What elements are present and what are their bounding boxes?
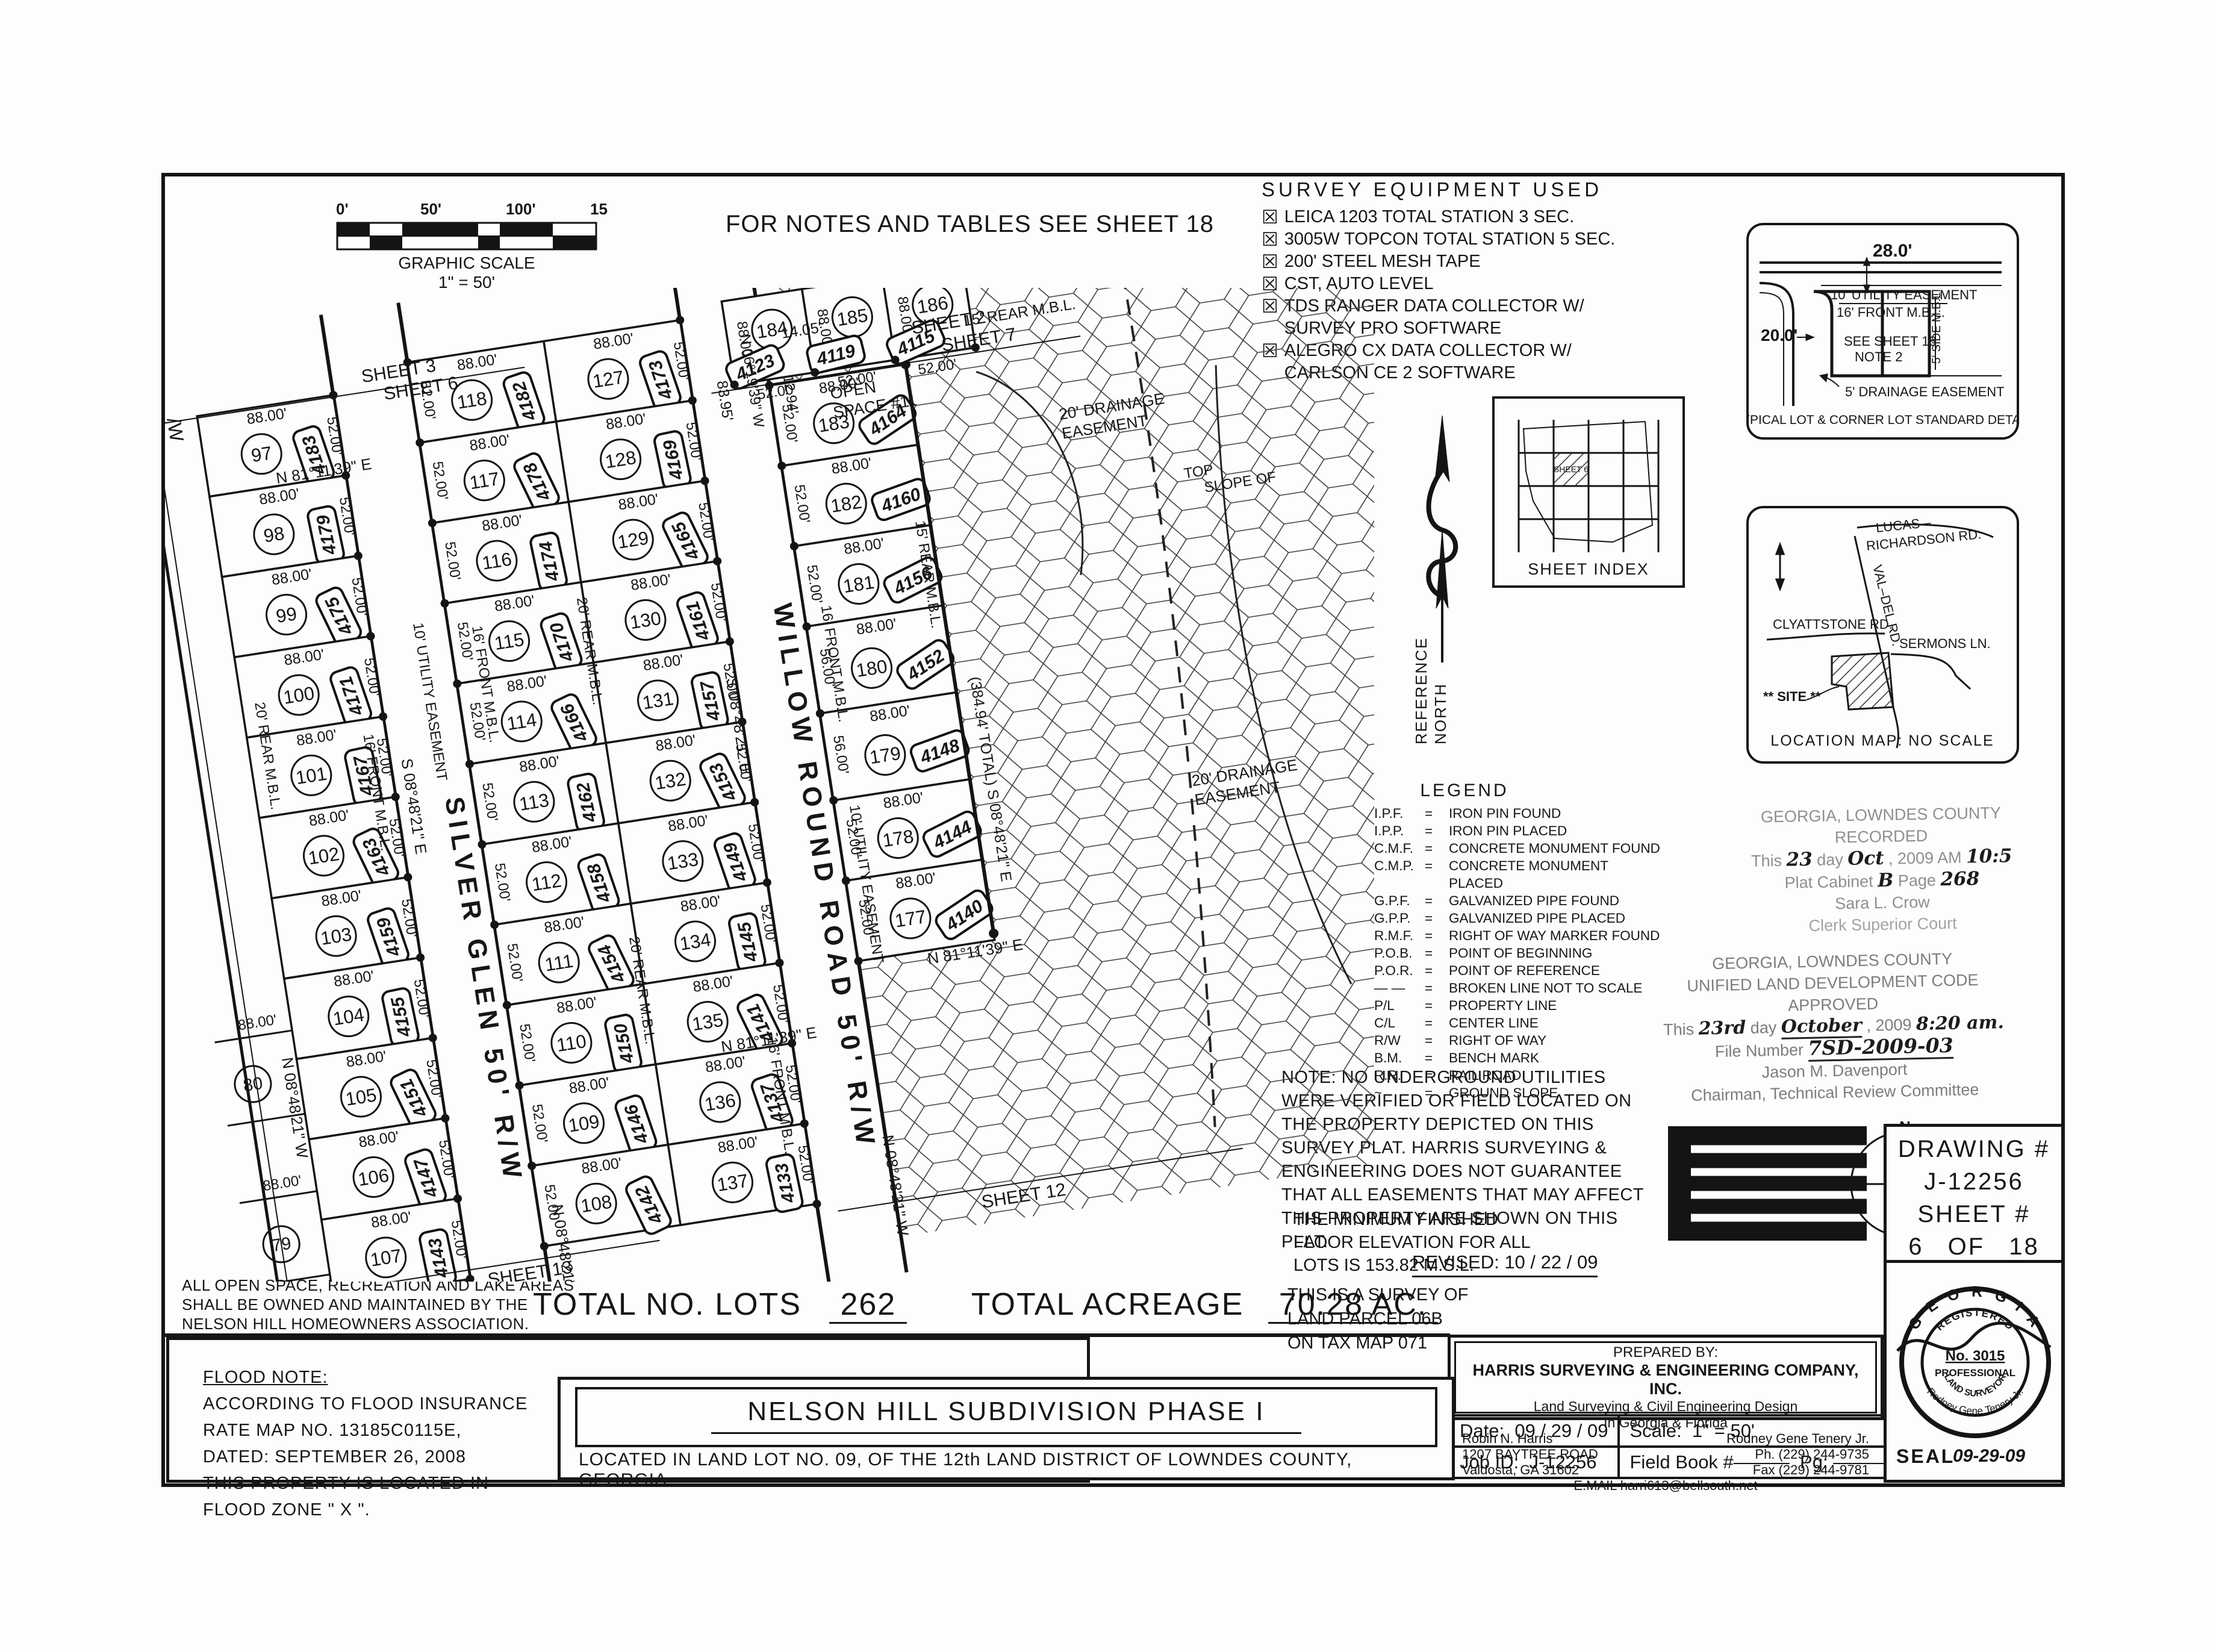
- legend-equals: =: [1425, 1014, 1449, 1032]
- legend-description: CONCRETE MONUMENT FOUND: [1449, 840, 1660, 857]
- legend-equals: =: [1425, 962, 1449, 979]
- legend-symbol: C.M.P.: [1374, 857, 1425, 892]
- plat-drawing-area: SILVER GLEN 50' R/WWILLOW ROUND ROAD 50'…: [164, 288, 1374, 1282]
- legend-equals: =: [1425, 840, 1449, 857]
- total-lots-value: 262: [829, 1287, 907, 1324]
- sheet-note: FOR NOTES AND TABLES SEE SHEET 18: [726, 211, 1214, 238]
- legend-item: B.M. = BENCH MARK: [1374, 1049, 1663, 1067]
- title-block: NELSON HILL SUBDIVISION PHASE I LOCATED …: [558, 1377, 1455, 1480]
- legend-item: P.O.R. = POINT OF REFERENCE: [1374, 962, 1663, 979]
- pg-value: ———: [1833, 1451, 1889, 1473]
- legend-equals: =: [1425, 1032, 1449, 1049]
- checked-checkbox-icon: ☒: [1262, 251, 1278, 273]
- legend-item: C.M.P. = CONCRETE MONUMENT PLACED: [1374, 857, 1663, 892]
- legend-description: CENTER LINE: [1449, 1014, 1539, 1032]
- sheet-index-caption: SHEET INDEX: [1528, 560, 1649, 578]
- legend-equals: =: [1425, 979, 1449, 997]
- detail-caption: TYPICAL LOT & CORNER LOT STANDARD DETAIL: [1749, 413, 2017, 427]
- legend-equals: =: [1425, 805, 1449, 822]
- legend-item: G.P.F. = GALVANIZED PIPE FOUND: [1374, 892, 1663, 909]
- prepared-by-box: PREPARED BY: HARRIS SURVEYING & ENGINEER…: [1448, 1335, 1884, 1420]
- totals-line: TOTAL NO. LOTS 262 TOTAL ACREAGE 70.28 A…: [533, 1286, 1438, 1323]
- pg-label: Pg:: [1800, 1451, 1828, 1473]
- detail-dim-28: 28.0': [1873, 241, 1913, 261]
- scale-tick-100: 100': [506, 200, 536, 218]
- job-value: J-12256: [1529, 1451, 1596, 1473]
- open-space-line: NELSON HILL HOMEOWNERS ASSOCIATION.: [182, 1314, 574, 1333]
- legend-symbol: C/L: [1374, 1014, 1425, 1032]
- graphic-scale-bar: 0' 50' 100' 150' GRAPHIC SCALE 1" = 50': [325, 199, 608, 289]
- equipment-item-label: 200' STEEL MESH TAPE: [1284, 251, 1481, 273]
- flood-note-line: FLOOD ZONE " X ".: [203, 1497, 1087, 1523]
- approved-time-hand: 8:20 am.: [1916, 1012, 2004, 1035]
- sheet-index-cell-label: SHEET 6: [1554, 464, 1589, 474]
- legend-item: I.P.F. = IRON PIN FOUND: [1374, 805, 1663, 822]
- equipment-item-label: LEICA 1203 TOTAL STATION 3 SEC.: [1284, 206, 1574, 228]
- legend-description: PROPERTY LINE: [1449, 997, 1557, 1014]
- lot-number: 79: [270, 1234, 293, 1256]
- recorded-month-hand: Oct: [1847, 847, 1884, 870]
- lot-number: 116: [481, 548, 513, 573]
- reference-north-label-2: NORTH: [1431, 683, 1449, 744]
- legend-description: POINT OF REFERENCE: [1449, 962, 1600, 979]
- date-label: Date:: [1460, 1420, 1504, 1441]
- subdivision-subtitle: LOCATED IN LAND LOT NO. 09, OF THE 12th …: [579, 1450, 1452, 1491]
- scale-checker-bar: [337, 223, 596, 249]
- scale-tick-150: 150': [590, 200, 608, 218]
- legend-description: BROKEN LINE NOT TO SCALE: [1449, 979, 1642, 997]
- equipment-item: ☒ LEICA 1203 TOTAL STATION 3 SEC.: [1262, 206, 1623, 228]
- legend-equals: =: [1425, 822, 1449, 840]
- reference-north-arrow: REFERENCE NORTH: [1406, 410, 1484, 747]
- open-space-note: ALL OPEN SPACE, RECREATION AND LAKE AREA…: [182, 1276, 574, 1333]
- recorded-page-hand: 268: [1940, 868, 1979, 890]
- detail-side-label: 5' SIDE M.B.L.: [1931, 289, 1943, 364]
- plat-scan-page: { "doc": { "sheet_note": "FOR NOTES AND …: [0, 0, 2216, 1652]
- legend-symbol: G.P.F.: [1374, 892, 1425, 909]
- fields-table: Date: 09 / 29 / 09 Scale: 1" = 50' Job I…: [1448, 1414, 1901, 1479]
- legend-title: LEGEND: [1374, 781, 1555, 801]
- total-acreage-value: 70.28 AC.: [1268, 1287, 1438, 1324]
- subdivision-title: NELSON HILL SUBDIVISION PHASE I: [561, 1397, 1452, 1427]
- legend-description: BENCH MARK: [1449, 1049, 1539, 1067]
- plat-rotated-group: SILVER GLEN 50' R/WWILLOW ROUND ROAD 50'…: [164, 288, 1374, 1282]
- location-map-site-polygon: [1832, 653, 1893, 709]
- prepared-by-label: PREPARED BY:: [1462, 1344, 1869, 1361]
- legend-symbol: I.P.P.: [1374, 822, 1425, 840]
- checked-checkbox-icon: ☒: [1262, 228, 1278, 251]
- scale-value: 1" = 50': [1692, 1420, 1755, 1441]
- checked-checkbox-icon: ☒: [1262, 206, 1278, 228]
- legend-equals: =: [1425, 909, 1449, 927]
- plat-annotation: /W: [164, 416, 188, 443]
- total-acreage-label: TOTAL ACREAGE: [971, 1287, 1244, 1322]
- legend-item: R/W = RIGHT OF WAY: [1374, 1032, 1663, 1049]
- drawing-number-box: DRAWING # J-12256 SHEET # 6 OF 18: [1884, 1124, 2064, 1272]
- legend-symbol: R.M.F.: [1374, 927, 1425, 944]
- legend-symbol: P/L: [1374, 997, 1425, 1014]
- legend-item: — — = BROKEN LINE NOT TO SCALE: [1374, 979, 1663, 997]
- drawing-label: DRAWING #: [1887, 1133, 2061, 1165]
- sheet-number-line: 6 OF 18: [1887, 1230, 2061, 1263]
- seal-box: G E O R G I A REGISTERED No. 3015 PROFES…: [1884, 1260, 2064, 1483]
- legend-symbol: R/W: [1374, 1032, 1425, 1049]
- approved-stamp: GEORGIA, LOWNDES COUNTY UNIFIED LAND DEV…: [1657, 947, 2009, 1107]
- drawing-number: J-12256: [1887, 1165, 2061, 1198]
- scale-tick-0: 0': [336, 200, 349, 218]
- equipment-item: ☒ 3005W TOPCON TOTAL STATION 5 SEC.: [1262, 228, 1623, 251]
- striped-black-box: [1668, 1126, 1867, 1241]
- legend-description: CONCRETE MONUMENT PLACED: [1449, 857, 1663, 892]
- recorded-time-hand: 10:5: [1966, 845, 2012, 867]
- revised-note: REVISED: 10 / 22 / 09: [1412, 1251, 1598, 1277]
- detail-utility-label: 10' UTILITY EASEMENT: [1831, 287, 1977, 302]
- lot-number: 115: [493, 629, 526, 654]
- detail-dim-20: 20.0': [1761, 326, 1797, 344]
- open-space-line: SHALL BE OWNED AND MAINTAINED BY THE: [182, 1295, 574, 1314]
- lot-number: 99: [275, 603, 298, 627]
- legend-item: P.O.B. = POINT OF BEGINNING: [1374, 944, 1663, 962]
- seal-label: SEAL: [1896, 1445, 1955, 1467]
- legend-description: GALVANIZED PIPE FOUND: [1449, 892, 1619, 909]
- svg-text:REGISTERED: REGISTERED: [1934, 1307, 2016, 1333]
- typical-lot-detail: 28.0' 20.0' 10' UTILITY EASEMENT 16' FRO…: [1746, 223, 2019, 440]
- legend-equals: =: [1425, 927, 1449, 944]
- reference-north-label-1: REFERENCE: [1412, 637, 1430, 744]
- lot-number: 97: [250, 442, 273, 466]
- locmap-road-sermons: SERMONS LN.: [1899, 636, 1991, 651]
- lot-number: 118: [456, 388, 488, 413]
- scale-label: Scale:: [1629, 1420, 1681, 1441]
- detail-front-label: 16' FRONT M.B.L.: [1837, 305, 1945, 320]
- legend-equals: =: [1425, 1049, 1449, 1067]
- recorded-stamp: GEORGIA, LOWNDES COUNTY RECORDED This 23…: [1736, 802, 2028, 938]
- legend-symbol: P.O.B.: [1374, 944, 1425, 962]
- legend-item: P/L = PROPERTY LINE: [1374, 997, 1663, 1014]
- legend-equals: =: [1425, 857, 1449, 892]
- legend-items: I.P.F. = IRON PIN FOUND I.P.P. = IRON PI…: [1374, 805, 1663, 1102]
- company-email: E.MAIL harri613@bellsouth.net: [1462, 1478, 1869, 1494]
- legend-symbol: — —: [1374, 979, 1425, 997]
- lot-number: 80: [242, 1074, 264, 1096]
- lot-width-dim: 88.00': [262, 1173, 303, 1195]
- sheet-label: SHEET #: [1887, 1198, 2061, 1230]
- sheet-index: SHEET 6 SHEET INDEX: [1492, 396, 1685, 588]
- surveyor-seal: G E O R G I A REGISTERED No. 3015 PROFES…: [1887, 1263, 2061, 1480]
- scale-ratio: 1" = 50': [438, 273, 495, 289]
- sheet-number: 6: [1893, 1233, 1939, 1262]
- total-lots-label: TOTAL NO. LOTS: [533, 1287, 801, 1322]
- lot-number: 114: [505, 709, 538, 734]
- plat-svg: SILVER GLEN 50' R/WWILLOW ROUND ROAD 50'…: [164, 288, 1374, 1282]
- date-value: 09 / 29 / 09: [1514, 1420, 1608, 1441]
- detail-see-label: SEE SHEET 18: [1844, 334, 1937, 349]
- legend-description: GALVANIZED PIPE PLACED: [1449, 909, 1625, 927]
- company-name: HARRIS SURVEYING & ENGINEERING COMPANY, …: [1462, 1361, 1869, 1398]
- legend-symbol: P.O.R.: [1374, 962, 1425, 979]
- legend-item: C.M.F. = CONCRETE MONUMENT FOUND: [1374, 840, 1663, 857]
- fieldbook-value: ———: [1734, 1451, 1790, 1473]
- lot-number: 112: [531, 870, 563, 895]
- recorded-cab-hand: B: [1878, 870, 1894, 891]
- equipment-item: ☒ 200' STEEL MESH TAPE: [1262, 251, 1623, 273]
- svg-text:W: W: [1839, 1176, 1854, 1194]
- scale-tick-50: 50': [420, 200, 441, 218]
- lot-number: 98: [262, 523, 285, 547]
- legend-symbol: G.P.P.: [1374, 909, 1425, 927]
- equipment-item-label: 3005W TOPCON TOTAL STATION 5 SEC.: [1284, 228, 1616, 251]
- job-label: Job ID:: [1460, 1451, 1519, 1473]
- seal-date-hand: 09-29-09: [1953, 1446, 2025, 1466]
- graphic-scale: 0' 50' 100' 150' GRAPHIC SCALE 1" = 50': [325, 199, 608, 292]
- legend-description: RIGHT OF WAY: [1449, 1032, 1546, 1049]
- locmap-site-label: ** SITE **: [1763, 689, 1821, 704]
- legend-description: POINT OF BEGINNING: [1449, 944, 1592, 962]
- fieldbook-label: Field Book #: [1629, 1451, 1733, 1473]
- legend-item: G.P.P. = GALVANIZED PIPE PLACED: [1374, 909, 1663, 927]
- approved-filenumber-hand: 7SD-2009-03: [1808, 1033, 1953, 1062]
- detail-note-label: NOTE 2: [1855, 349, 1902, 364]
- lot-number: 111: [543, 950, 574, 976]
- sheet-total: 18: [1993, 1233, 2055, 1262]
- legend-description: IRON PIN FOUND: [1449, 805, 1561, 822]
- lot-number: 110: [555, 1030, 588, 1056]
- locmap-road-valdel: VAL–DEL RD.: [1870, 563, 1905, 647]
- legend-equals: =: [1425, 892, 1449, 909]
- locmap-caption: LOCATION MAP: NO SCALE: [1770, 732, 1994, 749]
- legend-description: RIGHT OF WAY MARKER FOUND: [1449, 927, 1660, 944]
- detail-drain-label: 5' DRAINAGE EASEMENT: [1845, 384, 2005, 399]
- legend-equals: =: [1425, 997, 1449, 1014]
- legend-item: R.M.F. = RIGHT OF WAY MARKER FOUND: [1374, 927, 1663, 944]
- recorded-day-hand: 23: [1786, 849, 1813, 871]
- equipment-title: SURVEY EQUIPMENT USED: [1262, 178, 1623, 201]
- lot-number: 117: [468, 468, 500, 493]
- scale-caption: GRAPHIC SCALE: [398, 254, 535, 272]
- lot-width-dim: 88.00': [237, 1012, 278, 1034]
- legend: LEGEND I.P.F. = IRON PIN FOUND I.P.P. = …: [1374, 781, 1663, 1102]
- legend-equals: =: [1425, 944, 1449, 962]
- approved-day-hand: 23rd: [1698, 1017, 1746, 1040]
- lot-number: 113: [518, 790, 550, 815]
- legend-symbol: C.M.F.: [1374, 840, 1425, 857]
- legend-symbol: B.M.: [1374, 1049, 1425, 1067]
- legend-description: IRON PIN PLACED: [1449, 822, 1567, 840]
- location-map: LUCAS – RICHARDSON RD. VAL–DEL RD. CLYAT…: [1746, 506, 2019, 764]
- company-line2: Land Surveying & Civil Engineering Desig…: [1462, 1398, 1869, 1415]
- legend-item: C/L = CENTER LINE: [1374, 1014, 1663, 1032]
- locmap-road-clyattstone: CLYATTSTONE RD.: [1773, 617, 1893, 632]
- legend-item: I.P.P. = IRON PIN PLACED: [1374, 822, 1663, 840]
- legend-symbol: I.P.F.: [1374, 805, 1425, 822]
